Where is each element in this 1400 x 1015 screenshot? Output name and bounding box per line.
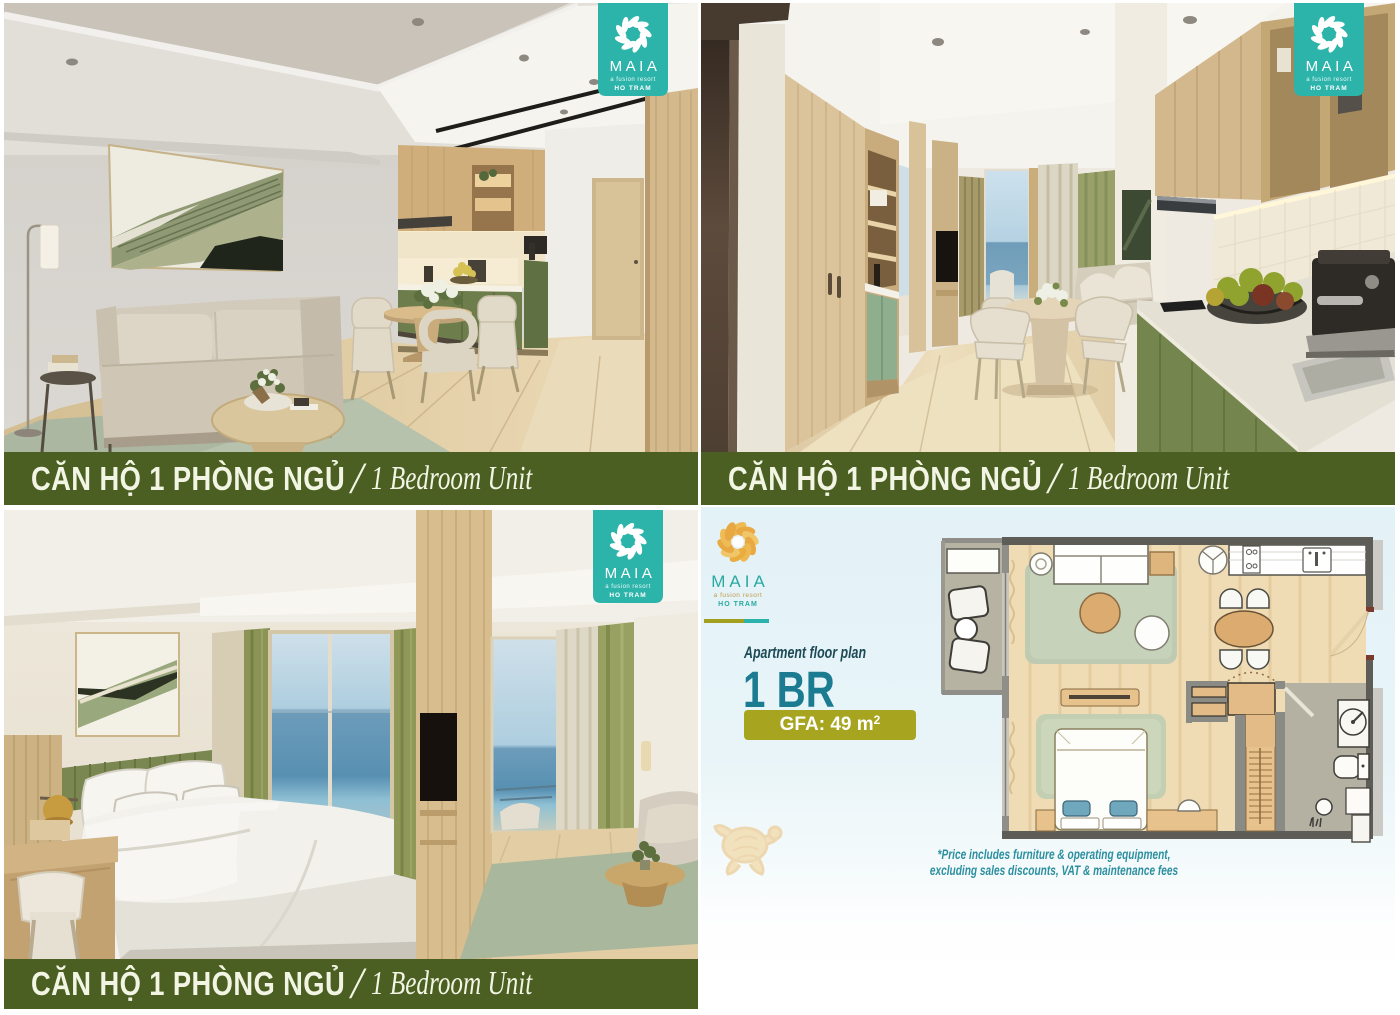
svg-text:a fusion resort: a fusion resort bbox=[714, 592, 763, 599]
svg-text:a fusion resort: a fusion resort bbox=[610, 77, 656, 83]
svg-text:a fusion resort: a fusion resort bbox=[605, 584, 651, 590]
svg-text:MAIA: MAIA bbox=[605, 565, 656, 582]
svg-text:MAIA: MAIA bbox=[610, 58, 661, 75]
svg-text:MAIA: MAIA bbox=[711, 572, 769, 591]
svg-text:HO TRAM: HO TRAM bbox=[1310, 85, 1347, 92]
svg-text:HO TRAM: HO TRAM bbox=[718, 601, 758, 608]
svg-text:MAIA: MAIA bbox=[1306, 58, 1357, 75]
svg-text:a fusion resort: a fusion resort bbox=[1306, 77, 1352, 83]
svg-text:HO TRAM: HO TRAM bbox=[614, 85, 651, 92]
svg-text:HO TRAM: HO TRAM bbox=[609, 592, 646, 599]
